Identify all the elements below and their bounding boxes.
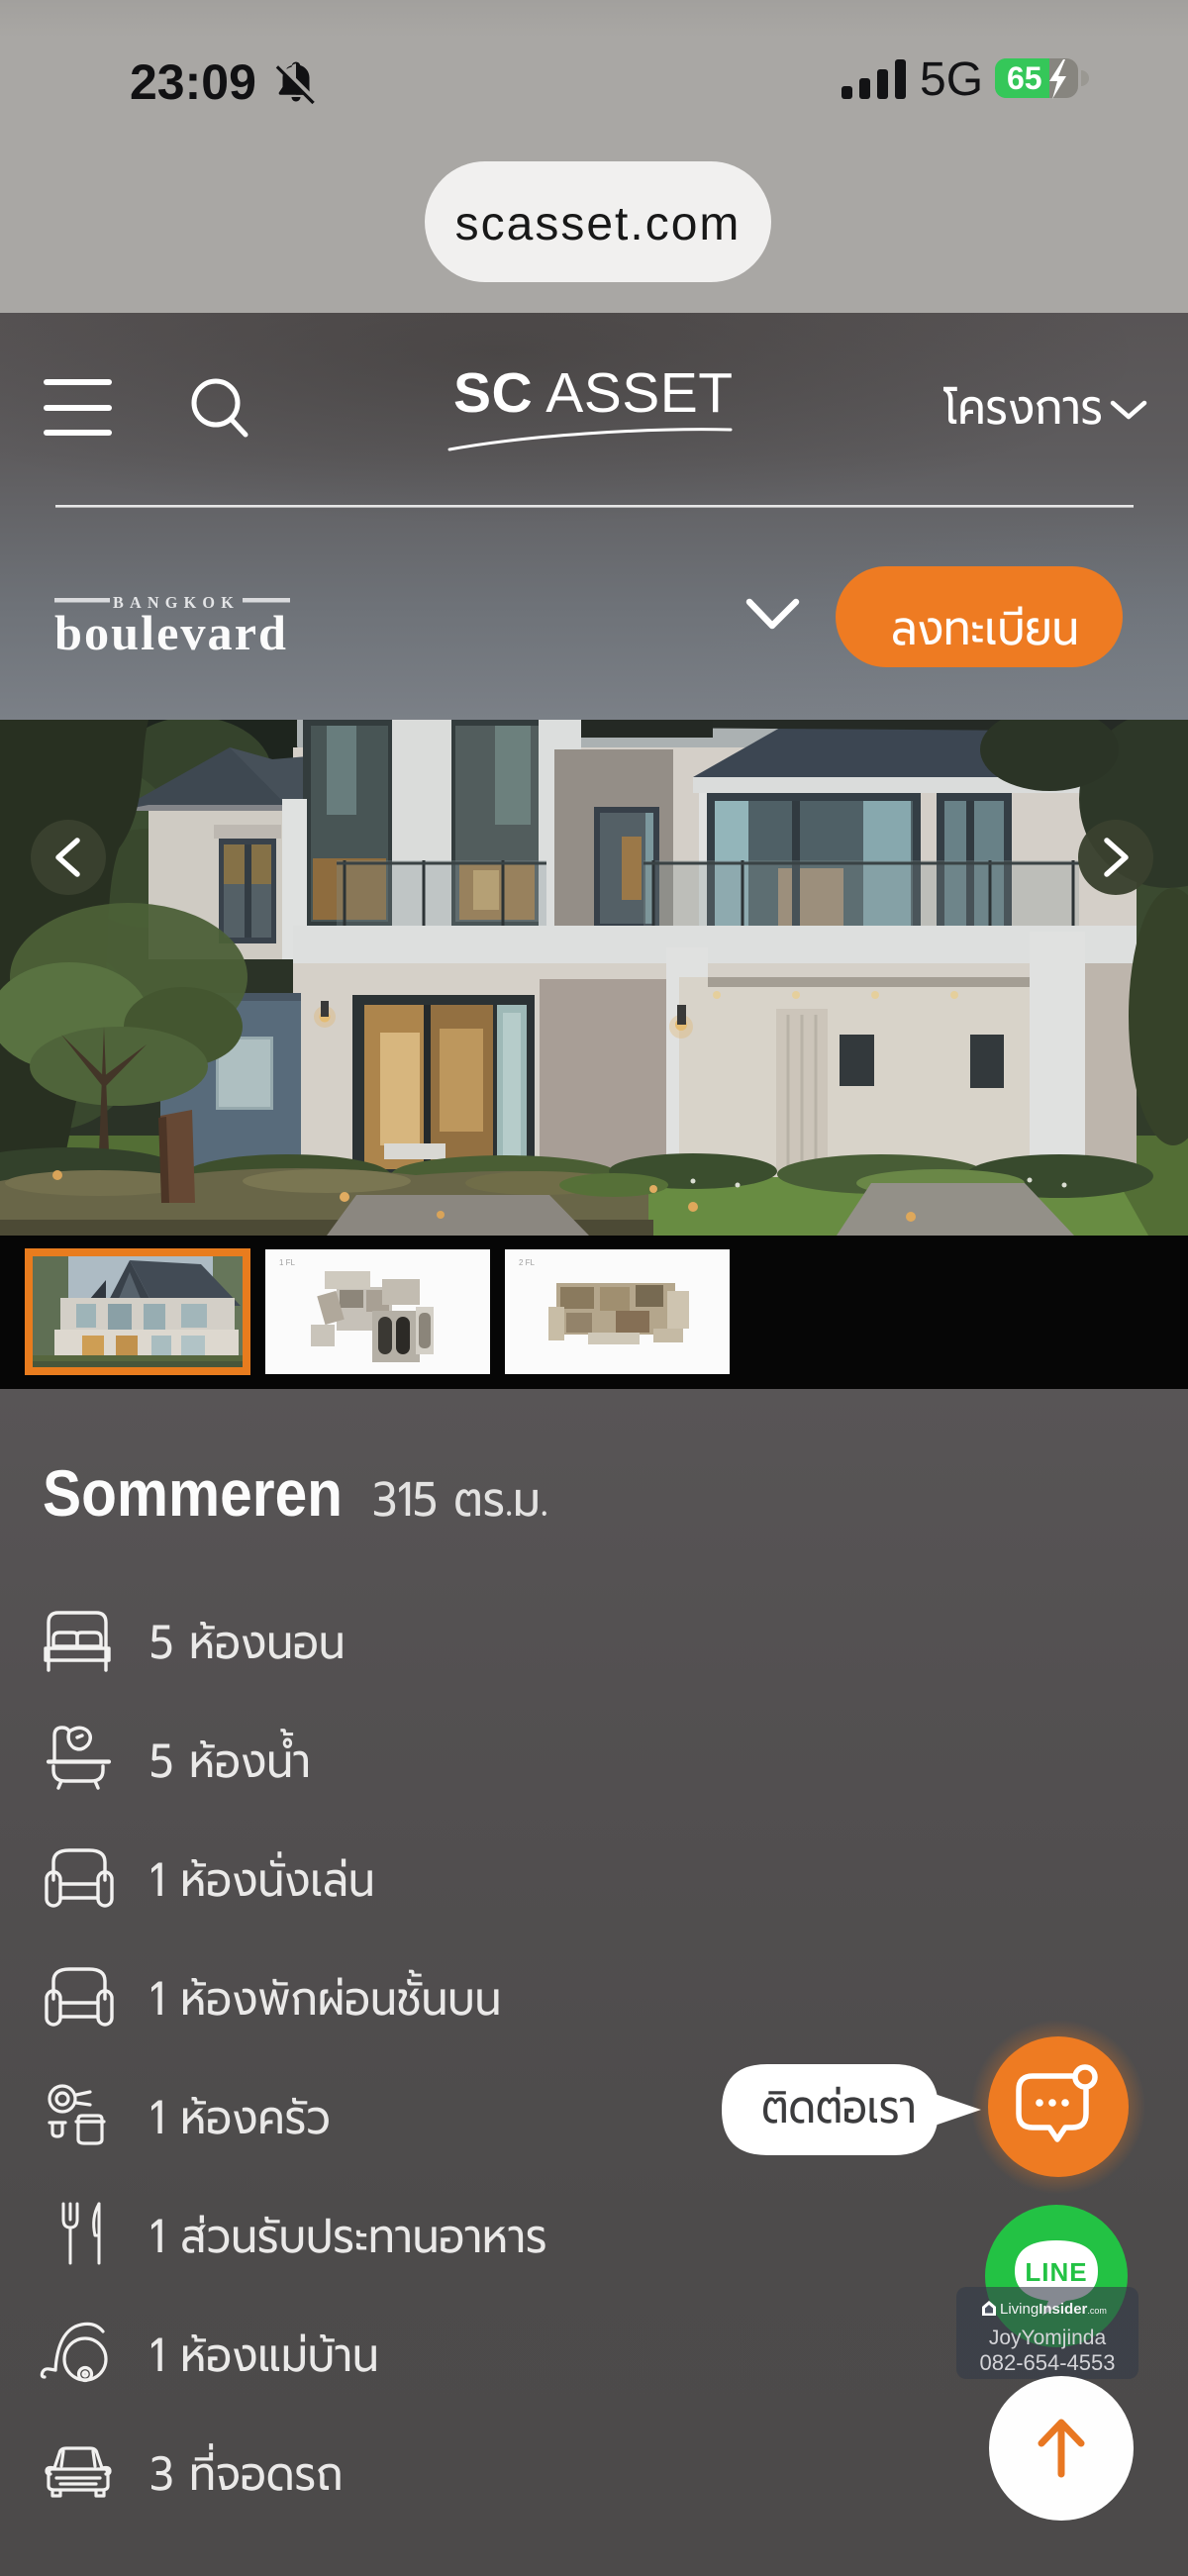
- svg-text:boulevard: boulevard: [54, 605, 288, 660]
- svg-text:1 FL: 1 FL: [279, 1258, 296, 1267]
- svg-text:Sommeren: Sommeren: [43, 1456, 343, 1530]
- svg-text:2 FL: 2 FL: [519, 1258, 536, 1267]
- svg-text:LINE: LINE: [1025, 2257, 1087, 2287]
- svg-text:LivingInsider.com: LivingInsider.com: [1000, 2301, 1107, 2318]
- svg-text:JoyYomjinda: JoyYomjinda: [989, 2327, 1107, 2349]
